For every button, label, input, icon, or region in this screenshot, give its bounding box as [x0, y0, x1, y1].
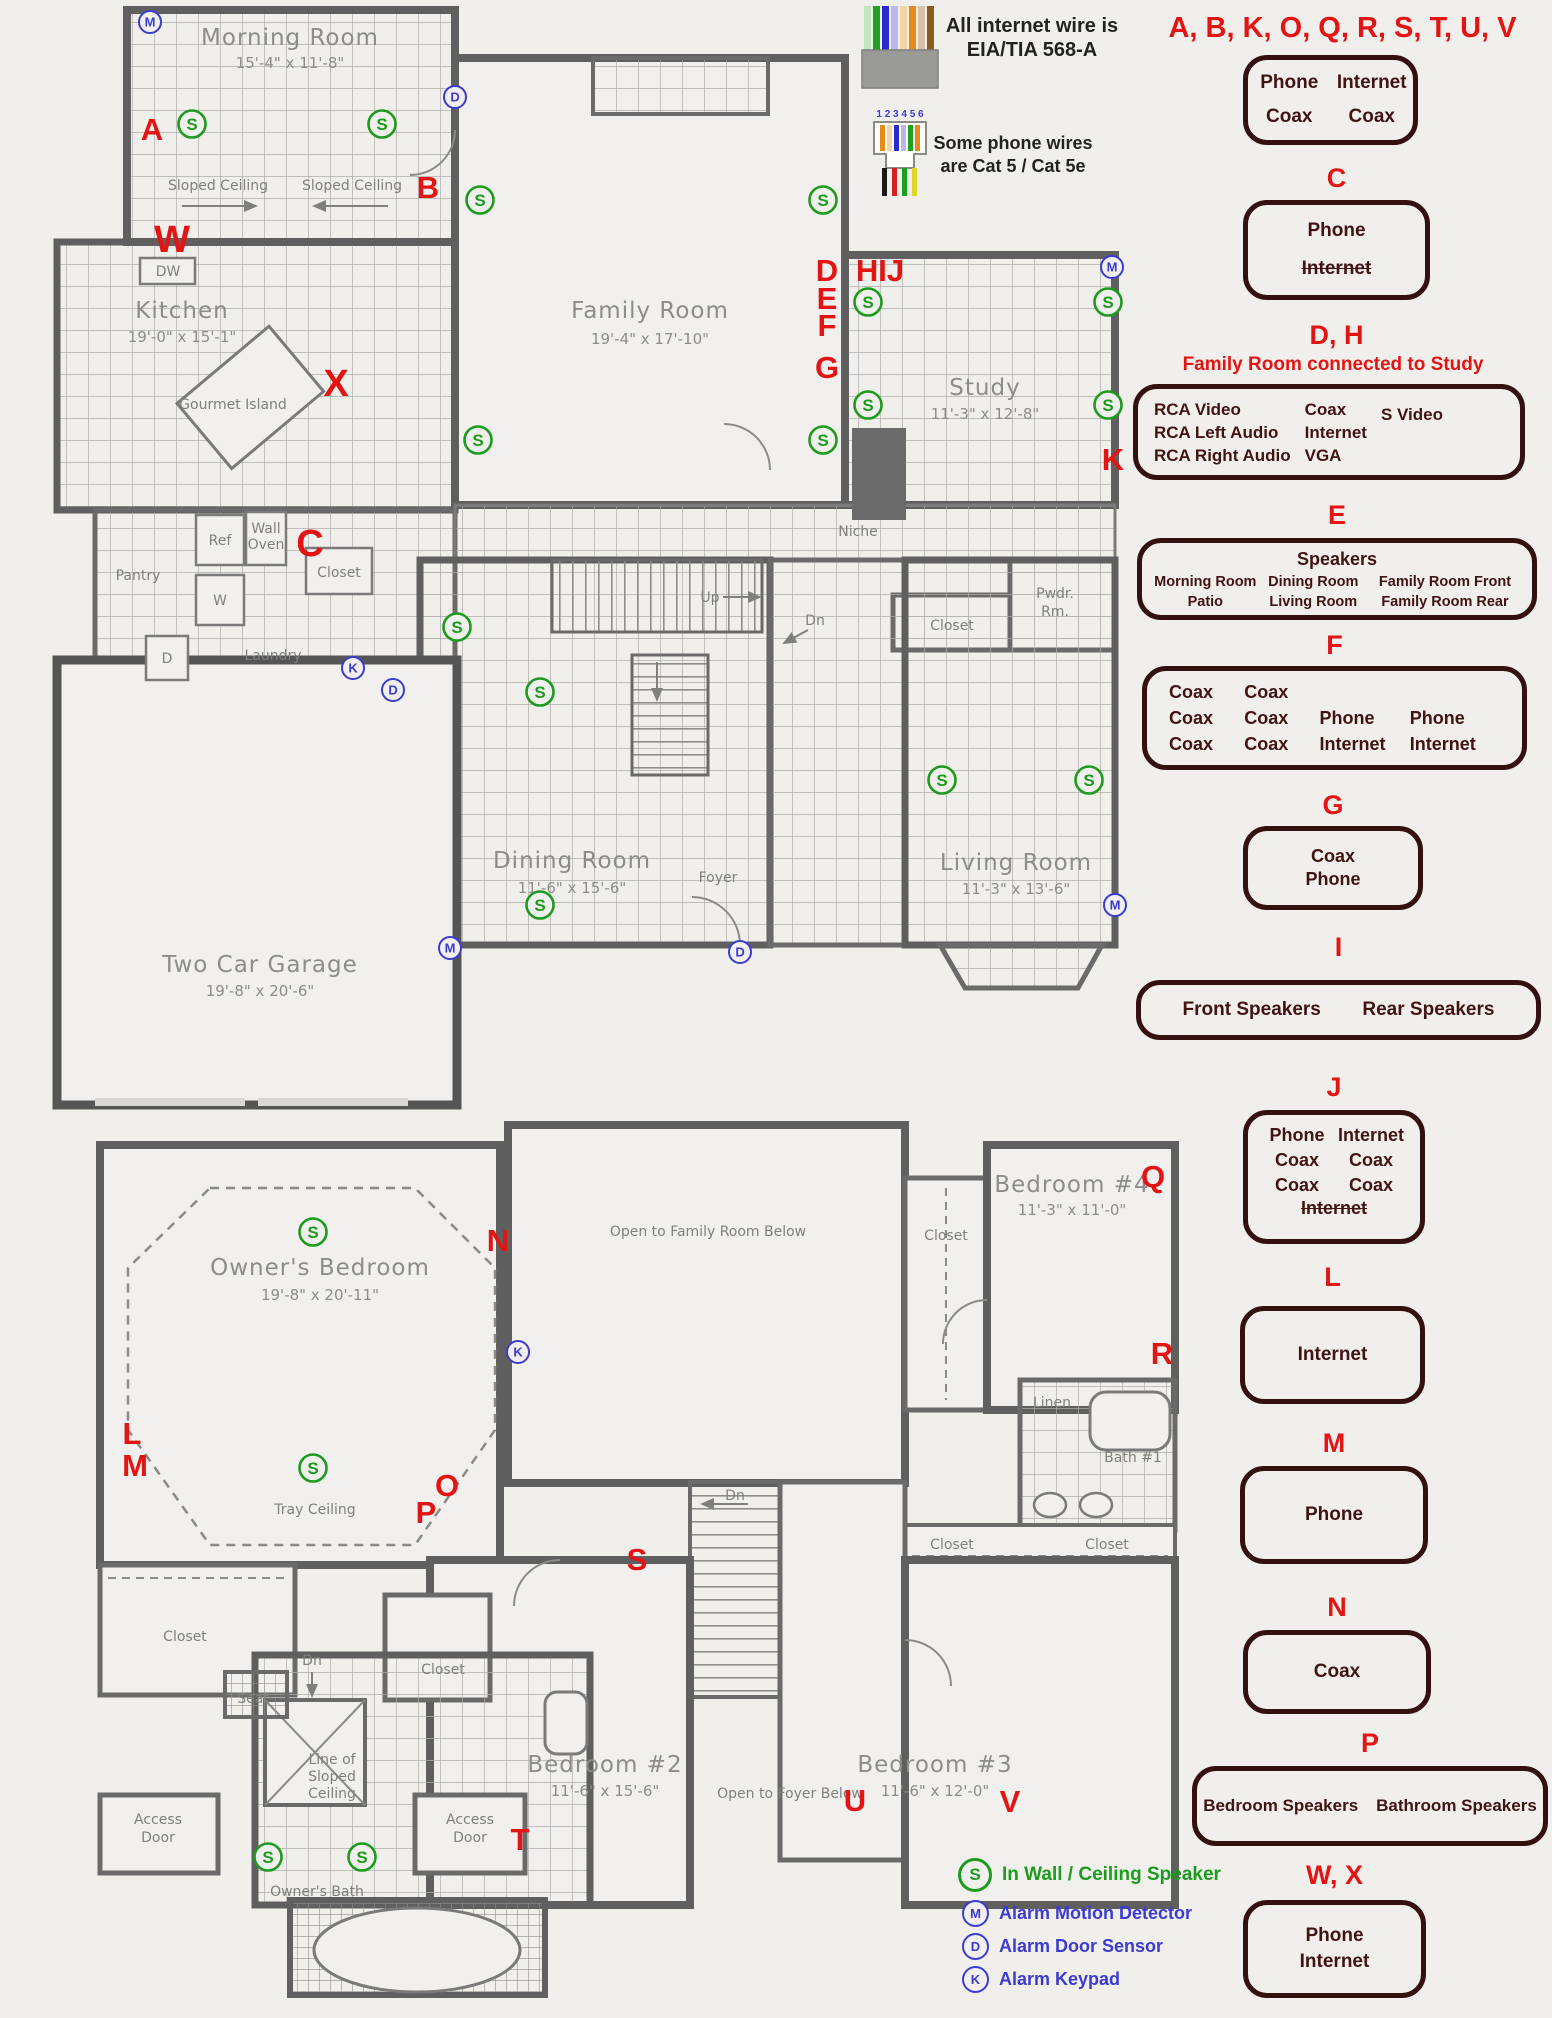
dh-coax: Coax [1305, 398, 1367, 421]
f-coax-3: Coax [1169, 705, 1244, 731]
svg-text:S: S [1102, 293, 1113, 312]
label-washer: W [213, 593, 227, 609]
outlet-letter-w: W [154, 219, 190, 261]
wx-internet: Internet [1300, 1951, 1370, 1973]
room-dims-living: 11'-3" x 13'-6" [962, 880, 1071, 898]
room-label-kitchen: Kitchen [135, 298, 228, 324]
alarm-keypad-marker: K [507, 1341, 529, 1363]
callout-abk-phone: Phone [1260, 72, 1318, 94]
outlet-letter-n: N [487, 1223, 509, 1258]
label-open-family: Open to Family Room Below [610, 1224, 806, 1240]
m-phone: Phone [1305, 1504, 1363, 1526]
room-dims-study: 11'-3" x 12'-8" [931, 405, 1040, 423]
speaker-marker: S [855, 289, 882, 316]
svg-text:M: M [1110, 898, 1121, 913]
svg-text:M: M [445, 941, 456, 956]
room-label-morning: Morning Room [201, 25, 379, 51]
alarm-motion-marker: M [1104, 894, 1126, 916]
room-dims-bed3: 11'-6" x 12'-0" [881, 1782, 990, 1800]
f-coax-2: Coax [1244, 679, 1319, 705]
callout-group-title: A, B, K, O, Q, R, S, T, U, V [1140, 12, 1545, 45]
outlet-letter-q: Q [1141, 1159, 1165, 1194]
legend-motion-label: Alarm Motion Detector [999, 1903, 1192, 1924]
alarm-door-marker: D [729, 941, 751, 963]
note-phone-line1: Some phone wires [928, 132, 1098, 155]
legend-speaker-row: S In Wall / Ceiling Speaker [958, 1858, 1221, 1892]
f-phone-1: Phone [1319, 705, 1409, 731]
j-coax-4: Coax [1334, 1173, 1408, 1198]
callout-box-c: Phone Internet [1243, 200, 1430, 300]
j-internet-bottom: Internet [1301, 1198, 1367, 1218]
svg-text:S: S [474, 191, 485, 210]
callout-box-p: Bedroom Speakers Bathroom Speakers [1192, 1766, 1548, 1846]
callout-title-j: J [1243, 1072, 1425, 1103]
callout-abk-coax1: Coax [1266, 106, 1312, 128]
svg-text:S: S [472, 431, 483, 450]
legend-door-row: D Alarm Door Sensor [962, 1933, 1163, 1960]
door-symbol-icon: D [962, 1933, 989, 1960]
label-dn-stairs2: Dn [725, 1488, 745, 1504]
alarm-motion-marker: M [1101, 256, 1123, 278]
callout-box-l: Internet [1240, 1306, 1425, 1404]
label-seat: Seat [237, 1691, 269, 1707]
room-label-family: Family Room [571, 298, 729, 324]
svg-text:S: S [451, 618, 462, 637]
label-closet-owner: Closet [163, 1629, 207, 1645]
alarm-door-marker: D [382, 679, 404, 701]
svg-text:S: S [376, 115, 387, 134]
callout-title-dh: D, H [1243, 320, 1430, 351]
legend-keypad-label: Alarm Keypad [999, 1969, 1120, 1990]
outlet-letter-r: R [1151, 1336, 1173, 1371]
connector-pin-numbers: 1 2 3 4 5 6 [876, 109, 924, 120]
label-closet-bath: Closet [1085, 1537, 1129, 1553]
note-internet-wire: All internet wire is EIA/TIA 568-A [942, 14, 1122, 62]
speaker-marker: S [1095, 289, 1122, 316]
room-dims-bed4: 11'-3" x 11'-0" [1018, 1201, 1127, 1219]
e-heading: Speakers [1142, 549, 1532, 570]
callout-box-i: Front Speakers Rear Speakers [1136, 980, 1541, 1040]
callout-box-g: Coax Phone [1243, 826, 1423, 910]
callout-box-n: Coax [1243, 1630, 1431, 1714]
callout-box-e: Speakers Morning Room Dining Room Family… [1137, 538, 1537, 620]
callout-box-dh: RCA Video RCA Left Audio RCA Right Audio… [1133, 384, 1525, 480]
label-tray-ceiling: Tray Ceiling [273, 1502, 355, 1518]
label-open-foyer: Open to Foyer Below [717, 1786, 863, 1802]
speaker-marker: S [527, 892, 554, 919]
svg-text:K: K [348, 661, 358, 676]
room-dims-garage: 19'-8" x 20'-6" [206, 982, 315, 1000]
label-pwdr-2: Rm. [1041, 604, 1069, 620]
svg-text:S: S [862, 293, 873, 312]
outlet-letter-l: L [123, 1416, 142, 1451]
label-owners-bath: Owner's Bath [270, 1884, 364, 1900]
alarm-motion-marker: M [439, 937, 461, 959]
speaker-marker: S [929, 767, 956, 794]
outlet-letter-hij: HIJ [856, 253, 904, 288]
note-internet-line2: EIA/TIA 568-A [942, 38, 1122, 62]
callout-title-m: M [1240, 1428, 1428, 1459]
callout-abk-internet: Internet [1337, 72, 1407, 94]
callout-box-abk: Phone Internet Coax Coax [1243, 55, 1418, 145]
legend-speaker-label: In Wall / Ceiling Speaker [1002, 1864, 1221, 1886]
note-internet-line1: All internet wire is [942, 14, 1122, 38]
note-phone-line2: are Cat 5 / Cat 5e [928, 155, 1098, 178]
label-wall-oven-2: Oven [248, 537, 285, 553]
callout-abk-coax2: Coax [1349, 106, 1395, 128]
callout-title-i: I [1136, 932, 1541, 963]
j-phone: Phone [1260, 1123, 1334, 1148]
svg-text:S: S [262, 1848, 273, 1867]
e-family-rear: Family Room Rear [1366, 592, 1524, 612]
j-coax-3: Coax [1260, 1173, 1334, 1198]
speaker-marker: S [527, 679, 554, 706]
dh-rca-left: RCA Left Audio [1154, 421, 1291, 444]
label-closet-bed3: Closet [930, 1537, 974, 1553]
callout-title-n: N [1243, 1592, 1431, 1623]
callout-box-j: Phone Internet Coax Coax Coax Coax Inter… [1243, 1110, 1425, 1244]
label-closet-hall2: Closet [421, 1662, 465, 1678]
label-linen: Linen [1033, 1395, 1071, 1411]
callout-title-c: C [1243, 163, 1430, 194]
label-sloped-ceiling-right: Sloped Ceiling [302, 178, 402, 194]
label-foyer: Foyer [699, 870, 738, 886]
svg-text:D: D [388, 683, 397, 698]
svg-text:S: S [186, 115, 197, 134]
label-stairs-up: Up [700, 590, 719, 606]
svg-text:S: S [307, 1459, 318, 1478]
svg-text:S: S [307, 1223, 318, 1242]
f-coax-6: Coax [1244, 731, 1319, 757]
alarm-motion-marker: M [139, 11, 161, 33]
alarm-door-marker: D [444, 86, 466, 108]
callout-title-g: G [1243, 790, 1423, 821]
dh-rca-right: RCA Right Audio [1154, 444, 1291, 467]
speaker-marker: S [855, 392, 882, 419]
svg-text:S: S [862, 396, 873, 415]
callout-box-f: Coax Coax Coax Coax Phone Phone Coax Coa… [1142, 666, 1527, 770]
label-closet-hall: Closet [930, 618, 974, 634]
room-label-owner: Owner's Bedroom [210, 1255, 430, 1281]
label-closet-kitchen: Closet [317, 565, 361, 581]
p-bedroom-speakers: Bedroom Speakers [1203, 1796, 1358, 1816]
speaker-marker: S [1076, 767, 1103, 794]
legend-door-label: Alarm Door Sensor [999, 1936, 1163, 1957]
f-coax-4: Coax [1244, 705, 1319, 731]
callout-subtitle-dh: Family Room connected to Study [1128, 354, 1538, 376]
callout-title-p: P [1192, 1728, 1548, 1759]
j-internet-top: Internet [1334, 1123, 1408, 1148]
outlet-letter-s: S [627, 1542, 648, 1577]
e-family-front: Family Room Front [1366, 572, 1524, 592]
svg-text:S: S [817, 191, 828, 210]
room-dims-bed2: 11'-6" x 15'-6" [551, 1782, 660, 1800]
f-phone-2: Phone [1410, 705, 1500, 731]
j-coax-2: Coax [1334, 1148, 1408, 1173]
room-dims-kitchen: 19'-0" x 15'-1" [128, 328, 237, 346]
callout-title-wx: W, X [1243, 1860, 1426, 1891]
speaker-marker: S [810, 187, 837, 214]
svg-text:S: S [534, 683, 545, 702]
n-coax: Coax [1314, 1661, 1360, 1683]
label-dw: DW [156, 264, 181, 280]
wire-diagram-cat5: 1 2 3 4 5 6 [874, 109, 926, 196]
outlet-letter-a: A [141, 112, 163, 147]
outlet-letter-v: V [1000, 1784, 1021, 1819]
outlet-letter-t: T [511, 1822, 530, 1857]
room-dims-family: 19'-4" x 17'-10" [591, 330, 709, 348]
svg-text:S: S [936, 771, 947, 790]
label-gourmet-island: Gourmet Island [179, 397, 287, 413]
e-living: Living Room [1261, 592, 1366, 612]
speaker-marker: S [300, 1455, 327, 1482]
outlet-letter-g: G [815, 350, 839, 385]
e-patio: Patio [1150, 592, 1261, 612]
label-sloped-line-1: Line of [308, 1752, 356, 1768]
g-coax: Coax [1311, 846, 1355, 867]
g-phone: Phone [1305, 869, 1360, 890]
p-bathroom-speakers: Bathroom Speakers [1376, 1796, 1537, 1816]
svg-text:D: D [450, 90, 459, 105]
room-label-bed3: Bedroom #3 [857, 1752, 1012, 1778]
legend-keypad-row: K Alarm Keypad [962, 1966, 1120, 1993]
speaker-marker: S [467, 187, 494, 214]
svg-text:S: S [1083, 771, 1094, 790]
room-label-bed4: Bedroom #4 [994, 1172, 1149, 1198]
f-internet-1: Internet [1319, 731, 1409, 757]
dh-rca-video: RCA Video [1154, 398, 1291, 421]
i-front-speakers: Front Speakers [1183, 999, 1321, 1021]
outlet-letter-x: X [323, 363, 349, 405]
label-access-door-2a: Access [446, 1812, 494, 1828]
label-stairs-dn-1: Dn [805, 613, 825, 629]
room-label-bed2: Bedroom #2 [527, 1752, 682, 1778]
room-label-study: Study [949, 375, 1020, 401]
speaker-marker: S [179, 111, 206, 138]
outlet-letter-o: O [435, 1468, 459, 1503]
wx-phone: Phone [1305, 1925, 1363, 1947]
l-internet: Internet [1298, 1344, 1368, 1366]
label-pwdr-1: Pwdr. [1036, 586, 1074, 602]
label-sloped-ceiling-left: Sloped Ceiling [168, 178, 268, 194]
svg-text:S: S [817, 431, 828, 450]
svg-text:D: D [735, 945, 744, 960]
callout-box-m: Phone [1240, 1466, 1428, 1564]
f-coax-1: Coax [1169, 679, 1244, 705]
outlet-letter-m: M [122, 1448, 148, 1483]
outlet-letter-k: K [1102, 442, 1125, 477]
note-phone-wire: Some phone wires are Cat 5 / Cat 5e [928, 132, 1098, 178]
svg-text:S: S [1102, 396, 1113, 415]
speaker-marker: S [255, 1844, 282, 1871]
room-label-garage: Two Car Garage [161, 952, 358, 978]
callout-c-phone: Phone [1307, 220, 1365, 242]
label-access-door-1a: Access [134, 1812, 182, 1828]
label-dryer: D [162, 651, 173, 667]
speaker-marker: S [1095, 392, 1122, 419]
alarm-keypad-marker: K [342, 657, 364, 679]
room-dims-owner: 19'-8" x 20'-11" [261, 1286, 379, 1304]
callout-title-l: L [1240, 1262, 1425, 1293]
motion-symbol-icon: M [962, 1900, 989, 1927]
label-bath1: Bath #1 [1104, 1450, 1162, 1466]
speaker-marker: S [444, 614, 471, 641]
speaker-marker: S [349, 1844, 376, 1871]
outlet-letter-b: B [417, 170, 439, 205]
e-dining: Dining Room [1261, 572, 1366, 592]
legend-motion-row: M Alarm Motion Detector [962, 1900, 1192, 1927]
speaker-marker: S [465, 427, 492, 454]
label-sloped-line-3: Ceiling [308, 1786, 356, 1802]
callout-title-e: E [1137, 500, 1537, 531]
f-coax-5: Coax [1169, 731, 1244, 757]
room-label-living: Living Room [940, 850, 1092, 876]
outlet-letter-f: F [818, 308, 837, 343]
callout-title-f: F [1142, 630, 1527, 661]
dh-svideo: S Video [1381, 403, 1443, 426]
f-internet-2: Internet [1410, 731, 1500, 757]
j-coax-1: Coax [1260, 1148, 1334, 1173]
svg-text:S: S [356, 1848, 367, 1867]
callout-c-internet: Internet [1302, 258, 1372, 280]
keypad-symbol-icon: K [962, 1966, 989, 1993]
svg-text:S: S [534, 896, 545, 915]
dh-internet: Internet [1305, 421, 1367, 444]
label-laundry: Laundry [244, 648, 301, 664]
label-sloped-line-2: Sloped [308, 1769, 356, 1785]
svg-text:M: M [145, 15, 156, 30]
label-ref: Ref [209, 533, 233, 549]
room-label-dining: Dining Room [493, 848, 651, 874]
callout-box-wx: Phone Internet [1243, 1900, 1426, 1998]
speaker-marker: S [810, 427, 837, 454]
dh-vga: VGA [1305, 444, 1367, 467]
speaker-marker: S [369, 111, 396, 138]
label-access-door-2b: Door [453, 1830, 487, 1846]
svg-text:M: M [1107, 260, 1118, 275]
room-dims-morning: 15'-4" x 11'-8" [236, 54, 345, 72]
label-dn-hall: Dn [302, 1653, 322, 1669]
e-morning: Morning Room [1150, 572, 1261, 592]
wire-diagram-568a [862, 6, 938, 88]
i-rear-speakers: Rear Speakers [1362, 999, 1494, 1021]
label-access-door-1b: Door [141, 1830, 175, 1846]
label-closet-bed4: Closet [924, 1228, 968, 1244]
outlet-letter-c: C [296, 523, 323, 565]
speaker-symbol-icon: S [958, 1858, 992, 1892]
speaker-marker: S [300, 1219, 327, 1246]
svg-text:K: K [513, 1345, 523, 1360]
label-niche: Niche [838, 524, 878, 540]
label-pantry: Pantry [116, 568, 161, 584]
outlet-letter-u: U [844, 1783, 866, 1818]
label-wall-oven-1: Wall [251, 521, 280, 537]
outlet-letter-p: P [416, 1495, 437, 1530]
